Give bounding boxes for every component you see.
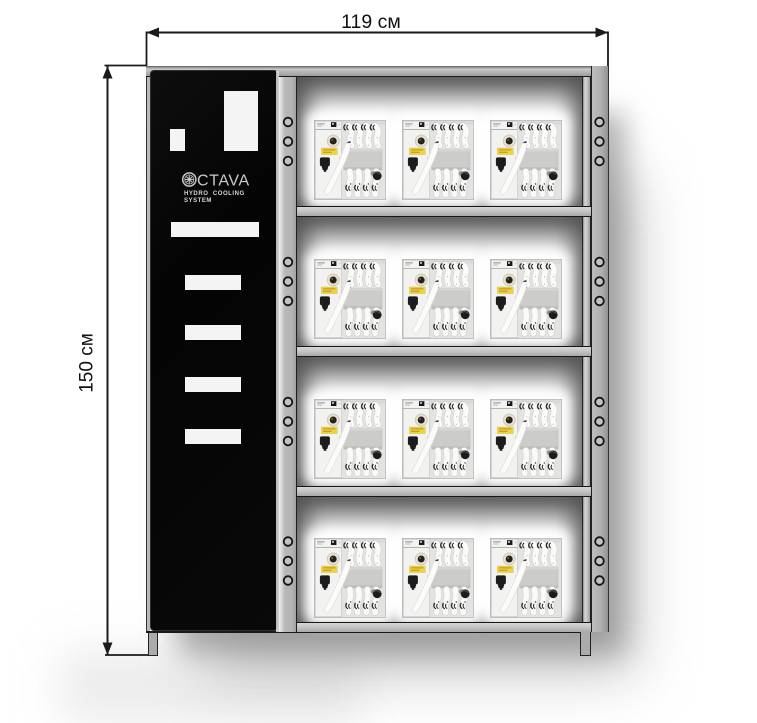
svg-text:CTAVA: CTAVA: [197, 172, 250, 189]
